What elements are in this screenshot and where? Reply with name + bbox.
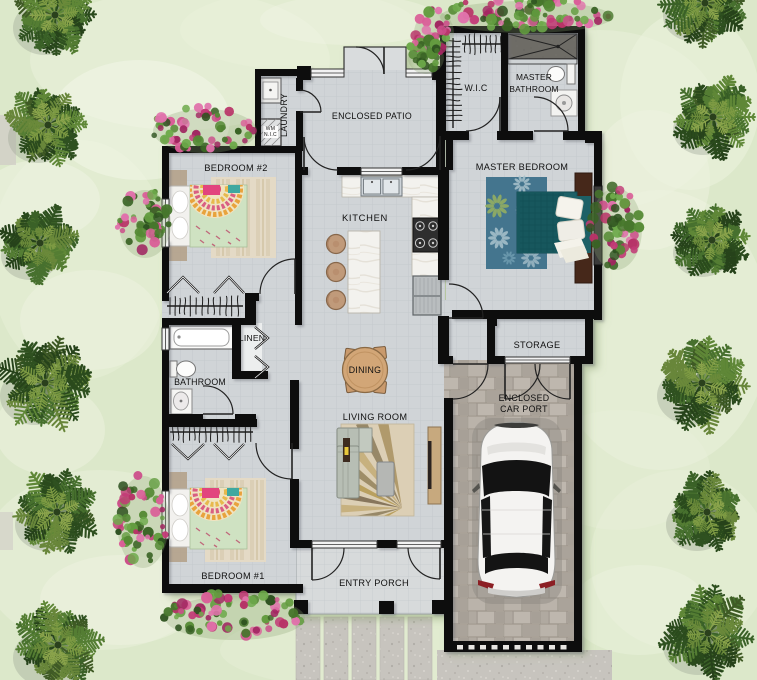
svg-text:CAR PORT: CAR PORT	[500, 404, 548, 414]
svg-text:BEDROOM #2: BEDROOM #2	[204, 163, 267, 173]
svg-text:LINEN: LINEN	[239, 333, 265, 343]
svg-text:DINING: DINING	[349, 365, 382, 375]
svg-text:W.I.C: W.I.C	[464, 83, 487, 93]
svg-text:BATHROOM: BATHROOM	[174, 377, 226, 387]
svg-text:ENCLOSED PATIO: ENCLOSED PATIO	[332, 111, 412, 121]
svg-text:MASTER BEDROOM: MASTER BEDROOM	[476, 162, 569, 172]
svg-text:ENTRY PORCH: ENTRY PORCH	[339, 578, 409, 588]
svg-text:ENCLOSED: ENCLOSED	[499, 393, 550, 403]
svg-text:BEDROOM #1: BEDROOM #1	[201, 571, 264, 581]
svg-text:N.I.C: N.I.C	[264, 132, 277, 138]
svg-text:KITCHEN: KITCHEN	[342, 212, 388, 223]
svg-text:MASTER: MASTER	[516, 72, 552, 82]
svg-text:BATHROOM: BATHROOM	[509, 84, 558, 94]
svg-text:LIVING ROOM: LIVING ROOM	[343, 412, 408, 422]
svg-text:STORAGE: STORAGE	[514, 340, 561, 350]
svg-text:LAUNDRY: LAUNDRY	[279, 93, 289, 137]
